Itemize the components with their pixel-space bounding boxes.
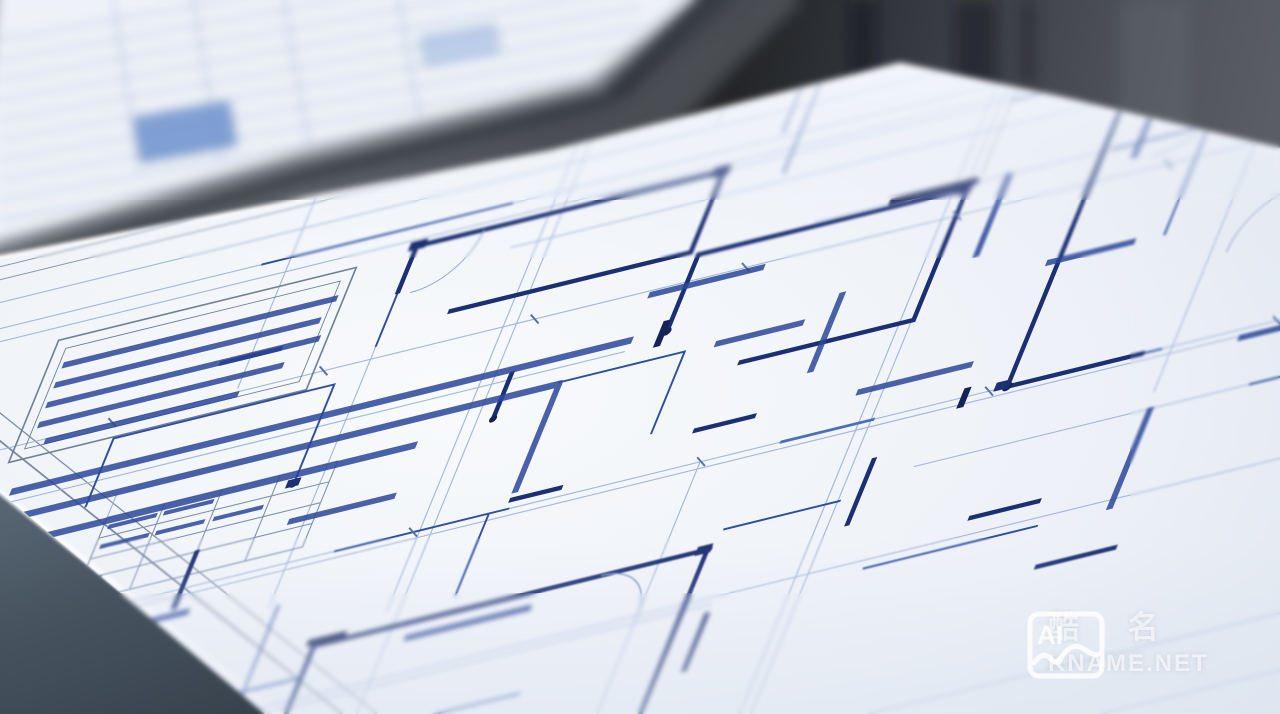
blueprint-photo: AI 酷 名 KNAME.NET [0,0,1280,714]
blueprint-scene [0,0,1280,714]
